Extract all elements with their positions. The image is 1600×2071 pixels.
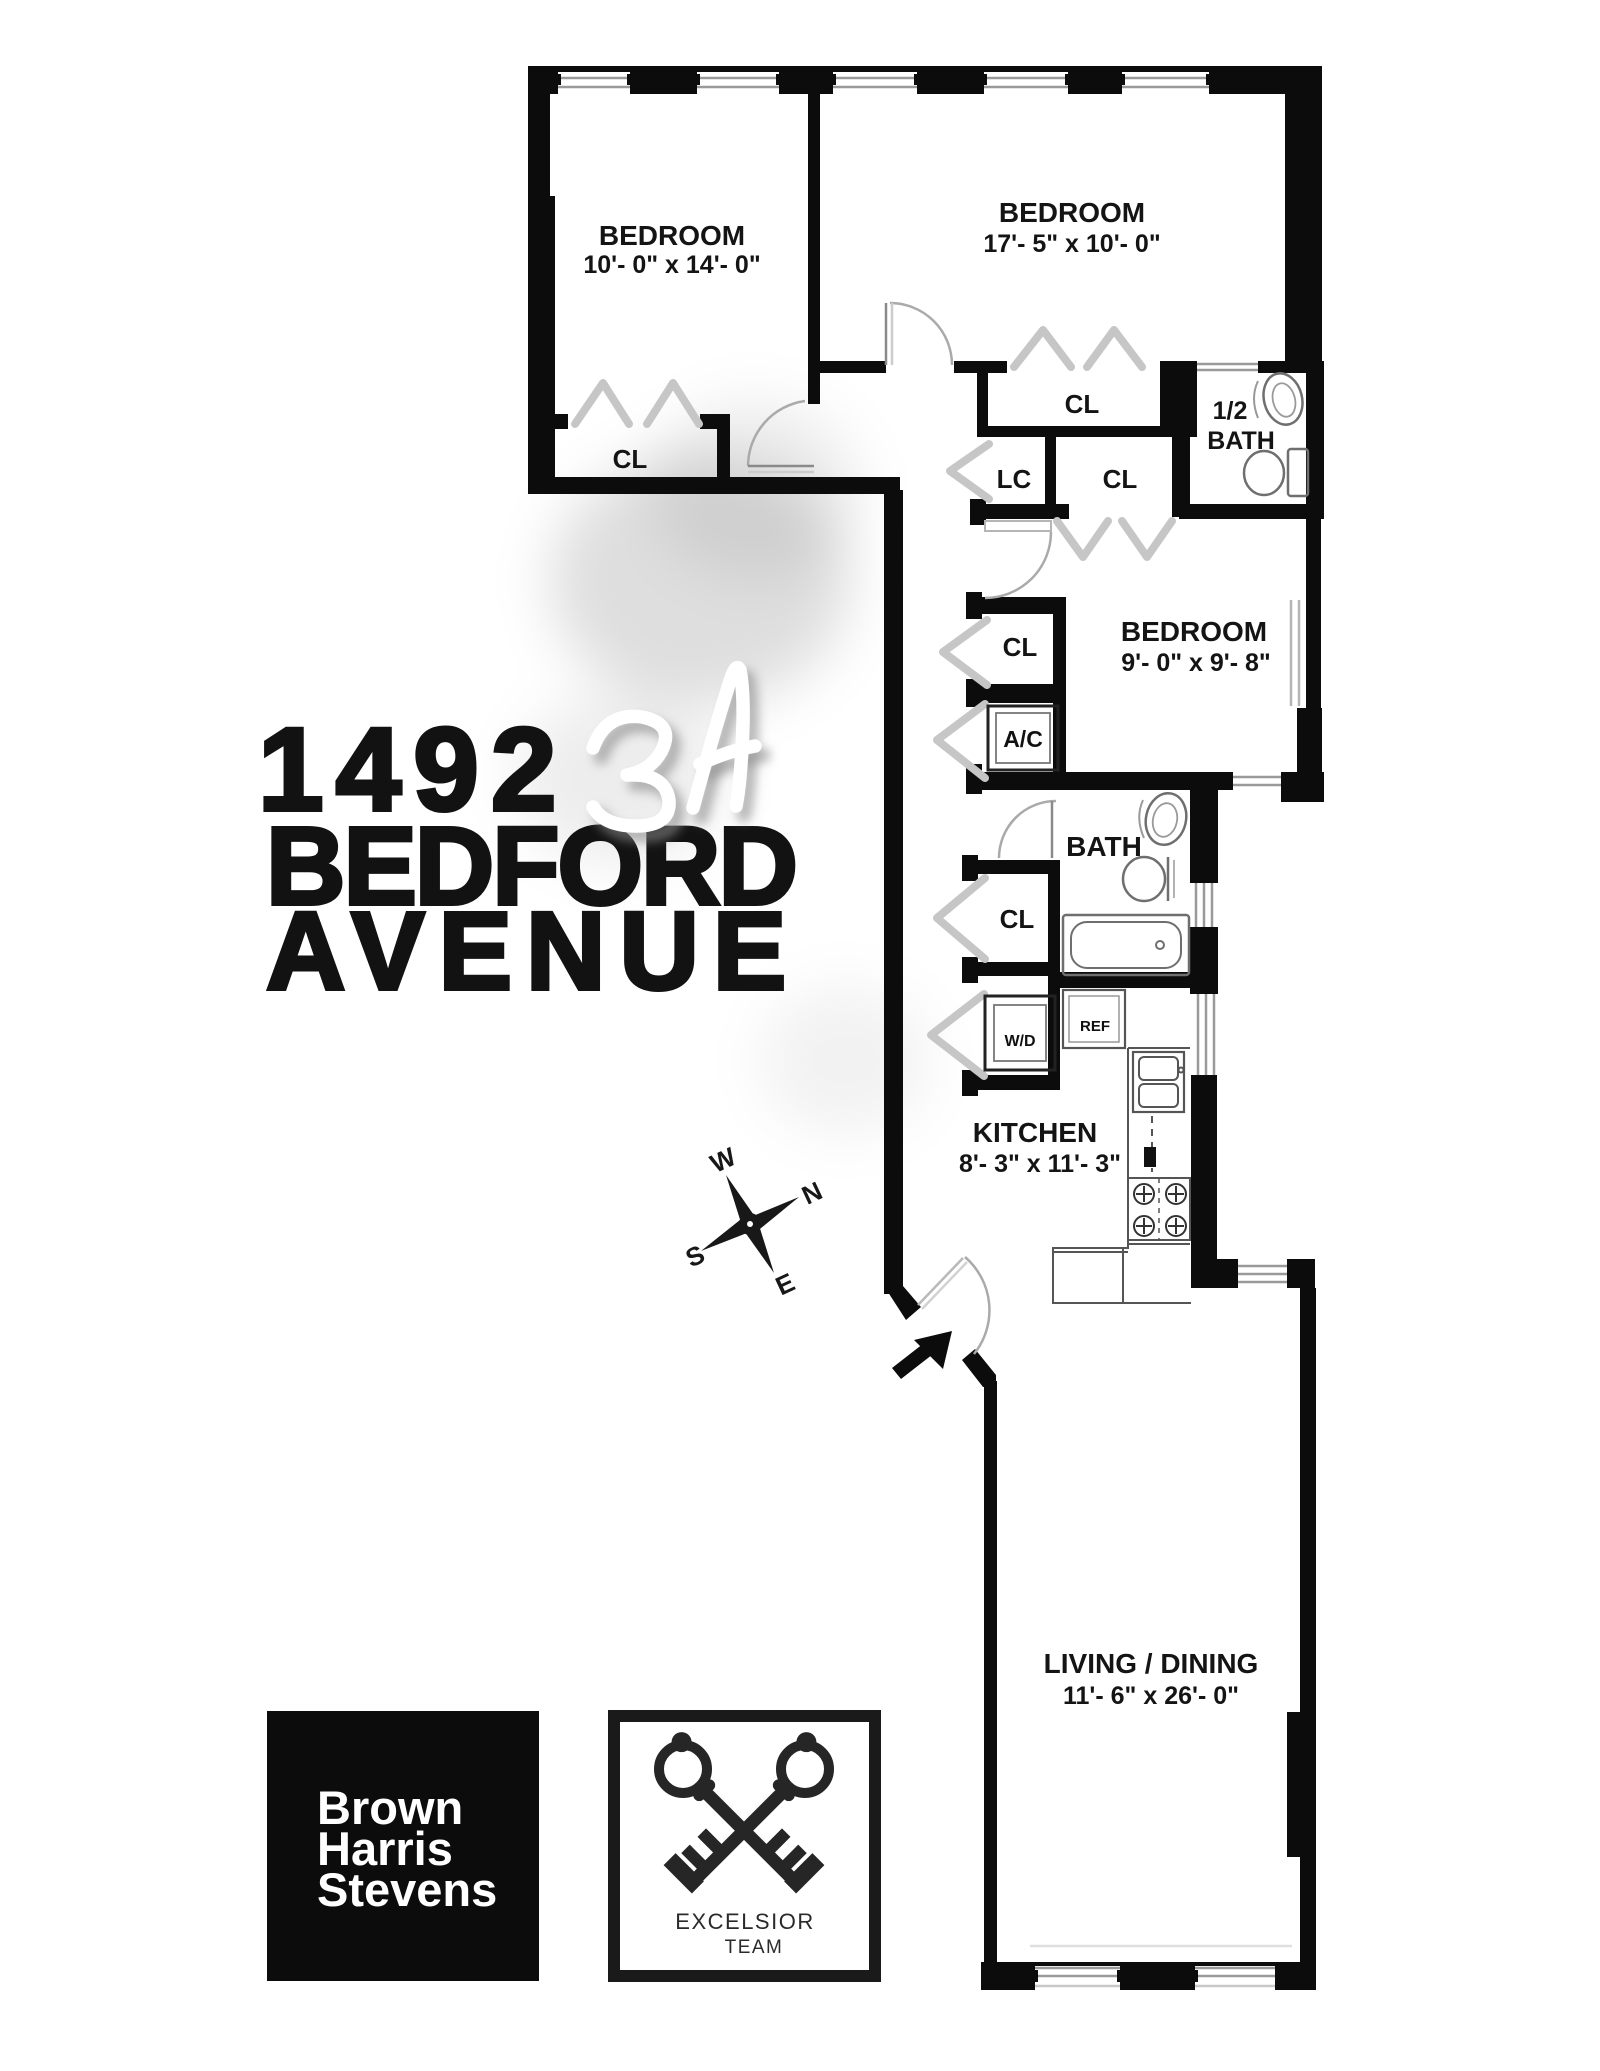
- svg-text:BEDROOM: BEDROOM: [999, 197, 1145, 228]
- svg-text:LIVING / DINING: LIVING / DINING: [1044, 1648, 1259, 1679]
- svg-text:Stevens: Stevens: [317, 1863, 497, 1916]
- svg-text:BATH: BATH: [1207, 427, 1275, 455]
- svg-text:11'- 6" x 26'- 0": 11'- 6" x 26'- 0": [1063, 1682, 1239, 1710]
- svg-text:1/2: 1/2: [1213, 397, 1248, 425]
- svg-text:W/D: W/D: [1004, 1033, 1035, 1050]
- svg-text:CL: CL: [1000, 904, 1035, 934]
- svg-text:CL: CL: [1065, 389, 1100, 419]
- svg-text:BEDROOM: BEDROOM: [599, 220, 745, 251]
- svg-text:AVENUE: AVENUE: [266, 890, 800, 1013]
- svg-text:KITCHEN: KITCHEN: [973, 1117, 1097, 1148]
- svg-text:CL: CL: [1103, 464, 1138, 494]
- svg-text:8'- 3" x 11'- 3": 8'- 3" x 11'- 3": [959, 1150, 1121, 1178]
- svg-text:CL: CL: [613, 444, 648, 474]
- svg-text:10'- 0" x 14'- 0": 10'- 0" x 14'- 0": [583, 251, 760, 279]
- svg-text:REF: REF: [1080, 1018, 1110, 1035]
- svg-text:9'- 0" x 9'- 8": 9'- 0" x 9'- 8": [1121, 649, 1271, 677]
- svg-text:17'- 5" x 10'- 0": 17'- 5" x 10'- 0": [983, 230, 1160, 258]
- svg-text:CL: CL: [1003, 632, 1038, 662]
- svg-text:TEAM: TEAM: [725, 1937, 784, 1958]
- svg-text:LC: LC: [997, 464, 1032, 494]
- svg-text:A/C: A/C: [1003, 726, 1043, 752]
- svg-text:BATH: BATH: [1066, 831, 1142, 862]
- svg-text:EXCELSIOR: EXCELSIOR: [675, 1909, 814, 1934]
- svg-text:BEDROOM: BEDROOM: [1121, 616, 1267, 647]
